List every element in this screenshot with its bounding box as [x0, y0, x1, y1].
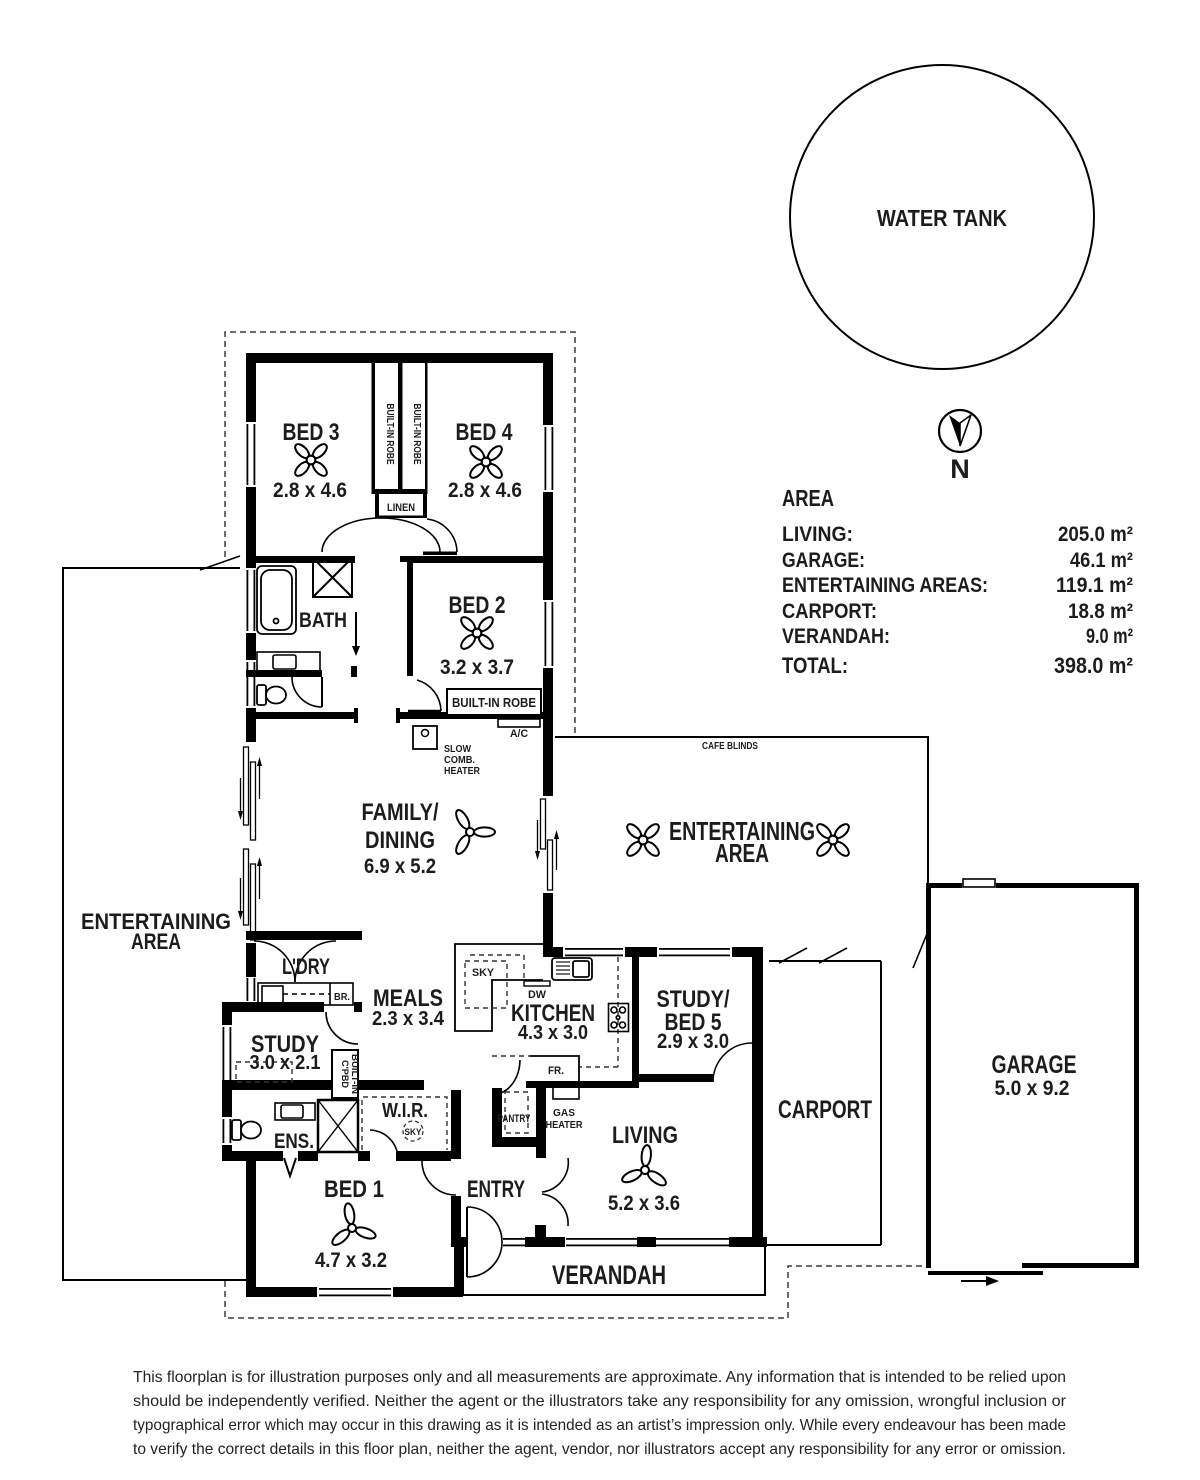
- svg-text:AREA: AREA: [715, 838, 769, 868]
- svg-text:SKY: SKY: [405, 1127, 423, 1138]
- svg-text:VERANDAH: VERANDAH: [552, 1260, 666, 1290]
- svg-text:4.3 x 3.0: 4.3 x 3.0: [518, 1022, 588, 1044]
- svg-text:BATH: BATH: [299, 609, 347, 632]
- svg-text:WATER TANK: WATER TANK: [877, 205, 1007, 231]
- svg-text:BUILT-IN ROBE: BUILT-IN ROBE: [411, 404, 422, 465]
- svg-text:398.0 m²: 398.0 m²: [1054, 653, 1133, 678]
- svg-text:typographical error which may: typographical error which may occur in t…: [133, 1417, 1066, 1434]
- svg-text:VERANDAH:: VERANDAH:: [782, 625, 890, 648]
- svg-text:BED 4: BED 4: [456, 419, 514, 446]
- svg-text:4.7 x 3.2: 4.7 x 3.2: [315, 1249, 387, 1272]
- svg-text:3.2 x 3.7: 3.2 x 3.7: [440, 656, 514, 679]
- svg-text:to verify the correct details: to verify the correct details in this fl…: [133, 1441, 1066, 1458]
- svg-text:ENTERTAINING AREAS:: ENTERTAINING AREAS:: [782, 574, 988, 597]
- svg-text:9.0 m²: 9.0 m²: [1086, 625, 1133, 648]
- svg-text:LIVING:: LIVING:: [782, 523, 853, 546]
- svg-text:BED 1: BED 1: [324, 1176, 384, 1203]
- svg-text:GARAGE:: GARAGE:: [782, 549, 865, 572]
- svg-text:2.9 x 3.0: 2.9 x 3.0: [657, 1030, 729, 1053]
- svg-text:205.0 m²: 205.0 m²: [1058, 523, 1133, 546]
- svg-text:C'PBD: C'PBD: [340, 1060, 350, 1088]
- svg-text:FR.: FR.: [548, 1065, 564, 1077]
- svg-text:18.8 m²: 18.8 m²: [1068, 600, 1133, 623]
- svg-text:6.9 x 5.2: 6.9 x 5.2: [364, 855, 436, 878]
- svg-text:ENS.: ENS.: [274, 1130, 314, 1153]
- svg-text:2.8 x 4.6: 2.8 x 4.6: [448, 479, 522, 502]
- svg-text:46.1 m²: 46.1 m²: [1070, 549, 1133, 572]
- svg-text:ENTRY: ENTRY: [467, 1176, 525, 1203]
- svg-text:CARPORT: CARPORT: [778, 1096, 872, 1124]
- svg-text:5.0 x 9.2: 5.0 x 9.2: [995, 1077, 1070, 1100]
- svg-text:GARAGE: GARAGE: [992, 1051, 1077, 1079]
- svg-text:PANTRY: PANTRY: [498, 1113, 531, 1125]
- svg-text:BUILT-IN ROBE: BUILT-IN ROBE: [452, 696, 536, 710]
- svg-text:BR.: BR.: [334, 992, 350, 1003]
- svg-text:2.3 x 3.4: 2.3 x 3.4: [372, 1008, 445, 1030]
- svg-text:A/C: A/C: [510, 728, 528, 740]
- svg-text:AREA: AREA: [131, 929, 181, 954]
- svg-text:BED 3: BED 3: [283, 419, 340, 446]
- svg-text:CAFE BLINDS: CAFE BLINDS: [702, 740, 758, 752]
- svg-text:HEATER: HEATER: [546, 1119, 583, 1131]
- svg-text:CARPORT:: CARPORT:: [782, 600, 877, 623]
- svg-text:L'DRY: L'DRY: [282, 954, 330, 979]
- svg-text:BED 2: BED 2: [449, 592, 506, 619]
- svg-text:DINING: DINING: [365, 827, 435, 854]
- svg-text:TOTAL:: TOTAL:: [782, 653, 848, 678]
- svg-text:2.8 x 4.6: 2.8 x 4.6: [273, 479, 347, 502]
- svg-text:119.1 m²: 119.1 m²: [1056, 574, 1133, 597]
- svg-text:5.2 x 3.6: 5.2 x 3.6: [608, 1192, 680, 1215]
- svg-text:GAS: GAS: [553, 1107, 575, 1119]
- svg-text:BUILT-IN ROBE: BUILT-IN ROBE: [384, 404, 395, 465]
- svg-text:N: N: [950, 454, 970, 484]
- svg-text:3.0 x 2.1: 3.0 x 2.1: [250, 1052, 321, 1074]
- svg-text:HEATER: HEATER: [444, 765, 480, 777]
- svg-text:This floorplan is for illustra: This floorplan is for illustration purpo…: [133, 1369, 1066, 1386]
- svg-text:LINEN: LINEN: [387, 502, 415, 514]
- svg-text:W.I.R.: W.I.R.: [382, 1100, 428, 1122]
- svg-text:FAMILY/: FAMILY/: [362, 799, 439, 826]
- svg-text:AREA: AREA: [782, 485, 834, 511]
- svg-text:should be independently verifi: should be independently verified. Neithe…: [133, 1393, 1067, 1410]
- svg-text:SKY: SKY: [472, 967, 495, 979]
